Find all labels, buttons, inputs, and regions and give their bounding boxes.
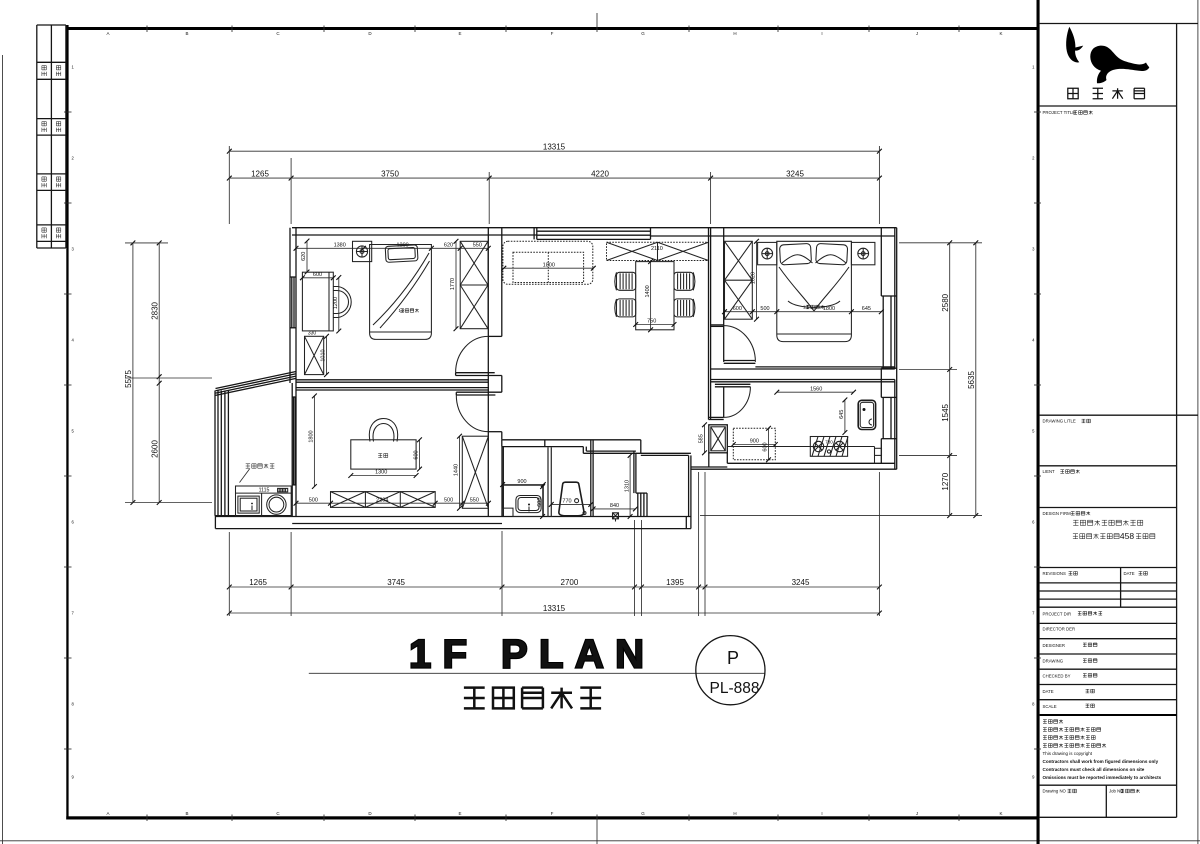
svg-text:600: 600: [313, 272, 322, 278]
svg-text:PL-888: PL-888: [710, 680, 760, 697]
svg-text:1800: 1800: [823, 306, 835, 312]
svg-text:I: I: [821, 811, 822, 816]
svg-text:H: H: [733, 31, 736, 36]
svg-text:840: 840: [610, 503, 619, 509]
svg-text:DRAWING: DRAWING: [1043, 659, 1064, 664]
svg-text:Contractors shall work from fi: Contractors shall work from figured dime…: [1043, 759, 1159, 764]
svg-text:550: 550: [473, 243, 482, 249]
svg-text:Contractors must check all dim: Contractors must check all dimensions on…: [1043, 767, 1145, 772]
svg-text:4220: 4220: [591, 169, 609, 178]
svg-text:3245: 3245: [786, 169, 804, 178]
svg-text:LIENT: LIENT: [1043, 469, 1056, 474]
svg-text:620: 620: [301, 252, 307, 261]
svg-text:3745: 3745: [387, 578, 405, 587]
svg-text:1270: 1270: [941, 472, 950, 490]
svg-text:2700: 2700: [561, 578, 579, 587]
svg-text:1395: 1395: [666, 578, 684, 587]
svg-text:5635: 5635: [967, 371, 976, 389]
svg-text:5575: 5575: [124, 369, 133, 387]
svg-text:1820: 1820: [751, 272, 757, 284]
svg-text:2204: 2204: [376, 497, 388, 503]
svg-text:F: F: [551, 811, 554, 816]
svg-text:500: 500: [444, 497, 453, 503]
svg-text:J: J: [916, 31, 918, 36]
svg-text:585: 585: [699, 434, 705, 443]
svg-text:1115: 1115: [259, 488, 270, 494]
svg-text:F: F: [551, 31, 554, 36]
svg-text:1560: 1560: [810, 386, 822, 392]
svg-text:1300: 1300: [375, 470, 387, 476]
svg-text:G: G: [641, 31, 645, 36]
svg-text:B: B: [185, 811, 188, 816]
svg-text:DATE: DATE: [1124, 571, 1135, 576]
svg-text:DESIGN FIRM: DESIGN FIRM: [1043, 511, 1072, 516]
svg-text:I: I: [821, 31, 822, 36]
svg-text:DESIGNER: DESIGNER: [1043, 643, 1065, 648]
svg-text:Omissions must be reported imm: Omissions must be reported immediately t…: [1043, 775, 1162, 780]
svg-text:J: J: [916, 811, 918, 816]
svg-text:900: 900: [750, 439, 759, 445]
svg-text:1440: 1440: [454, 464, 460, 476]
svg-text:G: G: [641, 811, 645, 816]
svg-text:DIRECTOR DER: DIRECTOR DER: [1043, 627, 1076, 632]
svg-text:600: 600: [537, 498, 543, 507]
svg-text:K: K: [999, 31, 1002, 36]
svg-text:2580: 2580: [941, 293, 950, 311]
svg-text:SCALE: SCALE: [1043, 704, 1057, 709]
svg-text:1F PLAN: 1F PLAN: [409, 633, 653, 677]
svg-text:550: 550: [470, 497, 479, 503]
svg-text:2830: 2830: [150, 301, 159, 319]
svg-text:1800: 1800: [543, 262, 555, 268]
svg-text:PROJECT TITLE: PROJECT TITLE: [1043, 110, 1076, 115]
svg-text:DATE: DATE: [1043, 689, 1054, 694]
svg-text:PROJECT DIR: PROJECT DIR: [1043, 611, 1072, 616]
svg-text:1800: 1800: [309, 430, 315, 442]
svg-text:A: A: [106, 811, 109, 816]
svg-text:330: 330: [308, 331, 317, 337]
svg-text:645: 645: [862, 306, 871, 312]
svg-text:This drawing is copyright: This drawing is copyright: [1043, 751, 1093, 756]
svg-text:620: 620: [444, 243, 453, 249]
svg-text:H: H: [733, 811, 736, 816]
svg-text:2600: 2600: [150, 440, 159, 458]
svg-text:645: 645: [839, 410, 845, 419]
svg-text:1265: 1265: [251, 169, 269, 178]
svg-text:1010: 1010: [321, 349, 327, 361]
svg-text:13315: 13315: [543, 142, 566, 151]
svg-text:B: B: [185, 31, 188, 36]
svg-text:REVISIONS: REVISIONS: [1043, 571, 1067, 576]
svg-text:1545: 1545: [941, 403, 950, 421]
svg-text:13315: 13315: [543, 604, 566, 613]
svg-text:1400: 1400: [645, 285, 651, 297]
svg-text:1200: 1200: [333, 297, 339, 309]
svg-text:1380: 1380: [334, 243, 346, 249]
svg-text:1770: 1770: [450, 278, 456, 290]
svg-text:500: 500: [309, 497, 318, 503]
svg-text:3750: 3750: [381, 169, 399, 178]
svg-text:780: 780: [825, 440, 833, 445]
svg-text:DRAWING LITLE: DRAWING LITLE: [1043, 419, 1076, 424]
svg-text:750: 750: [647, 318, 656, 324]
svg-text:K: K: [999, 811, 1002, 816]
svg-text:1265: 1265: [249, 578, 267, 587]
svg-text:600: 600: [414, 450, 420, 459]
svg-text:500: 500: [760, 306, 769, 312]
svg-text:770: 770: [562, 499, 571, 505]
svg-text:Drawing NO: Drawing NO: [1043, 789, 1067, 794]
svg-text:2110: 2110: [651, 246, 663, 252]
svg-text:458: 458: [1120, 531, 1134, 541]
svg-text:1310: 1310: [624, 480, 630, 492]
svg-text:3245: 3245: [792, 578, 810, 587]
svg-text:CHECKED BY: CHECKED BY: [1043, 673, 1071, 678]
svg-text:E: E: [458, 811, 461, 816]
svg-text:A: A: [106, 31, 109, 36]
svg-text:600: 600: [733, 306, 742, 312]
svg-text:E: E: [458, 31, 461, 36]
svg-text:900: 900: [517, 479, 526, 485]
svg-text:P: P: [727, 648, 739, 668]
